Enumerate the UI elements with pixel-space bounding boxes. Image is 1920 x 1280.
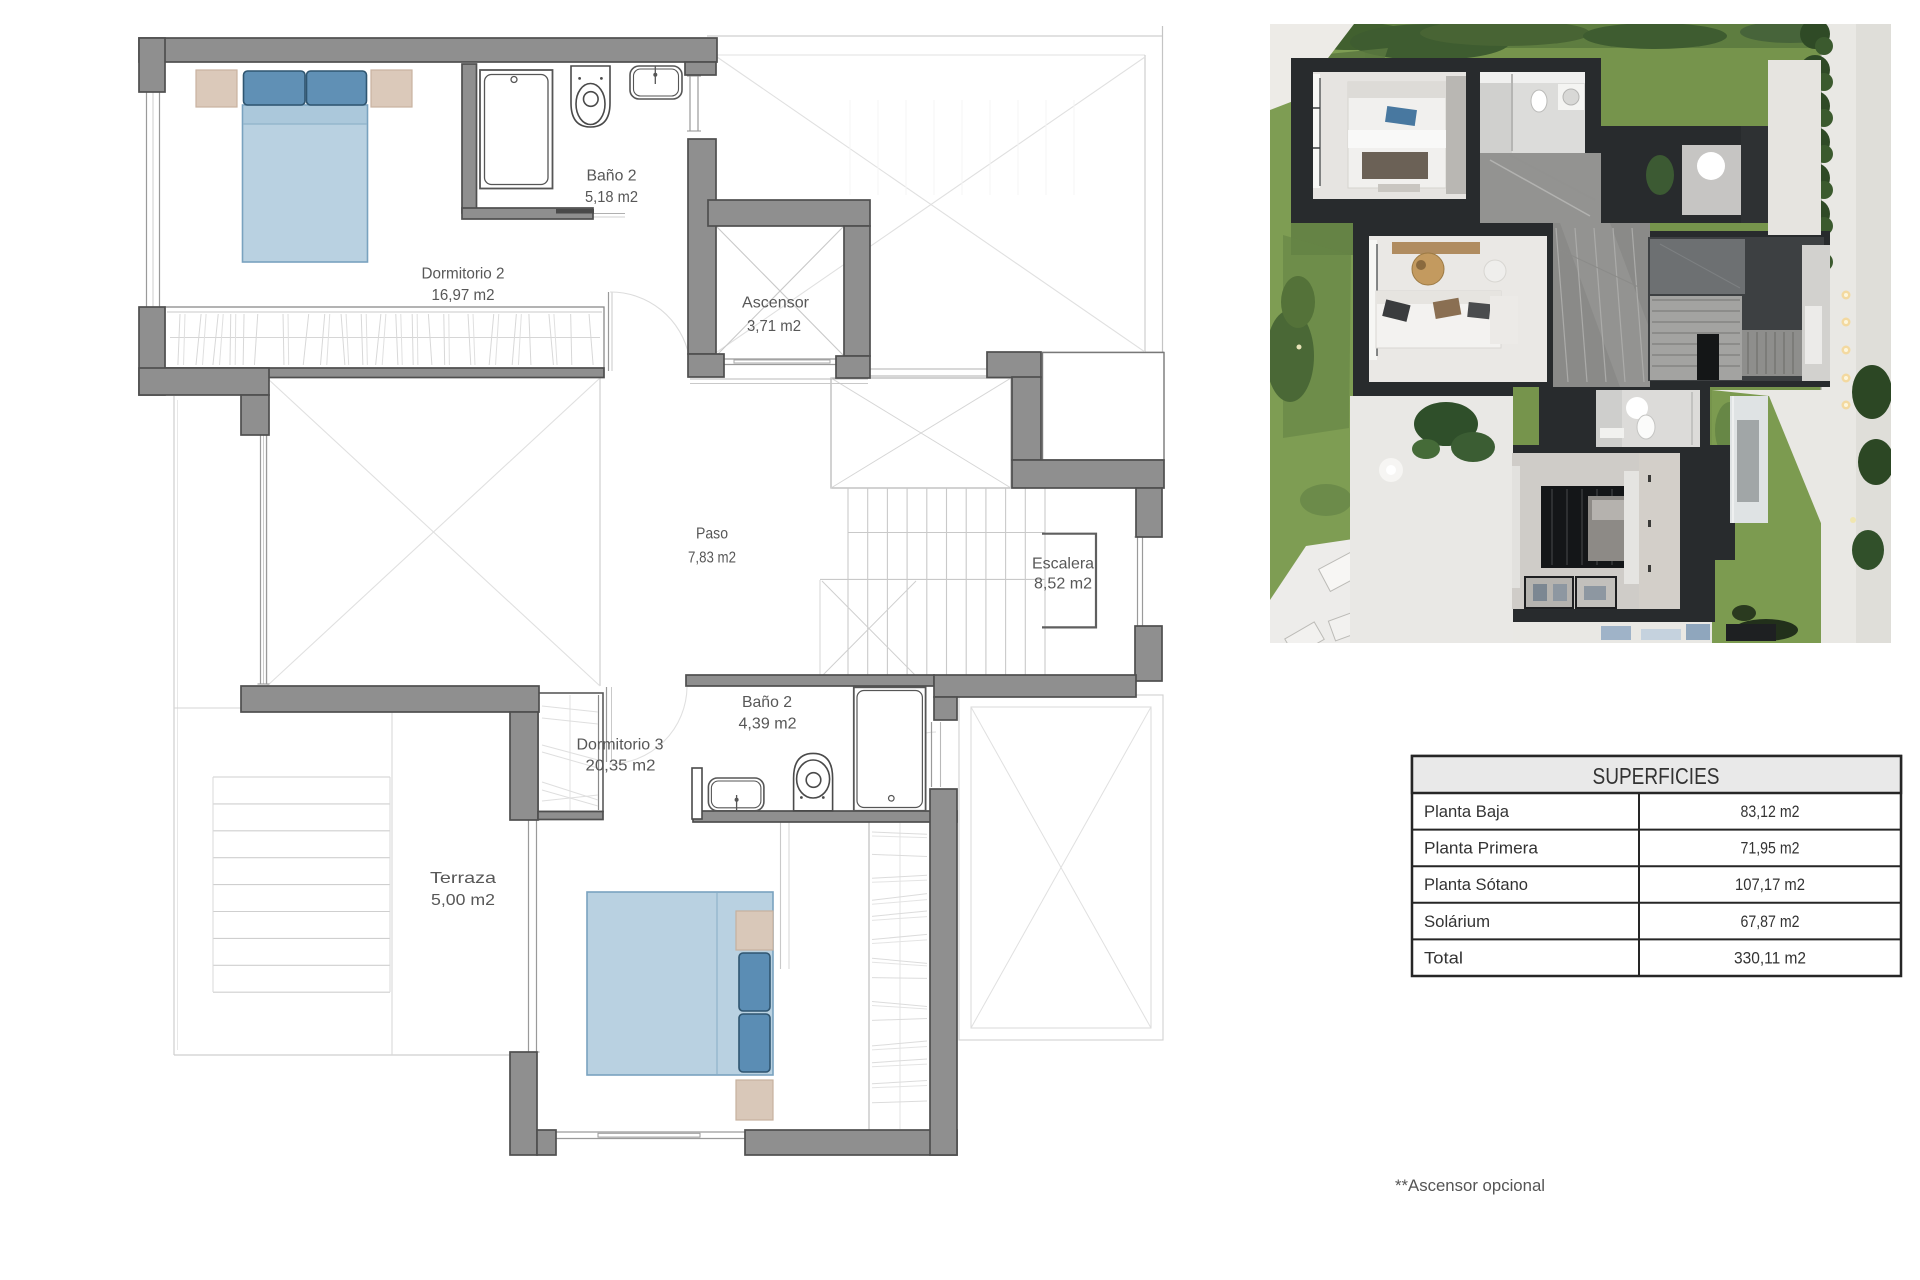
svg-text:Dormitorio 3: Dormitorio 3 xyxy=(577,737,664,754)
svg-text:8,52 m2: 8,52 m2 xyxy=(1034,576,1092,593)
svg-text:**Ascensor opcional: **Ascensor opcional xyxy=(1395,1176,1545,1195)
svg-text:Escalera: Escalera xyxy=(1032,556,1094,573)
svg-text:SUPERFICIES: SUPERFICIES xyxy=(1593,763,1720,789)
svg-text:Baño 2: Baño 2 xyxy=(587,168,637,185)
svg-text:16,97 m2: 16,97 m2 xyxy=(432,287,495,304)
svg-text:3,71 m2: 3,71 m2 xyxy=(747,318,801,335)
svg-text:5,18 m2: 5,18 m2 xyxy=(585,189,638,206)
svg-text:4,39 m2: 4,39 m2 xyxy=(739,716,797,733)
svg-text:5,00 m2: 5,00 m2 xyxy=(431,892,495,909)
svg-text:67,87 m2: 67,87 m2 xyxy=(1741,913,1800,931)
svg-text:Dormitorio 2: Dormitorio 2 xyxy=(422,266,505,283)
svg-text:20,35 m2: 20,35 m2 xyxy=(586,758,656,775)
svg-text:83,12 m2: 83,12 m2 xyxy=(1741,803,1800,821)
svg-text:330,11 m2: 330,11 m2 xyxy=(1734,949,1806,967)
svg-text:7,83 m2: 7,83 m2 xyxy=(688,550,736,567)
svg-text:Planta Primera: Planta Primera xyxy=(1424,840,1539,858)
svg-text:107,17 m2: 107,17 m2 xyxy=(1735,876,1805,894)
svg-text:Terraza: Terraza xyxy=(430,870,496,887)
svg-text:Planta Sótano: Planta Sótano xyxy=(1424,876,1528,894)
svg-text:Ascensor: Ascensor xyxy=(742,295,810,312)
svg-text:Paso: Paso xyxy=(696,526,728,543)
svg-text:71,95 m2: 71,95 m2 xyxy=(1741,840,1800,858)
svg-text:Planta Baja: Planta Baja xyxy=(1424,803,1510,821)
svg-text:Total: Total xyxy=(1424,949,1463,967)
svg-text:Solárium: Solárium xyxy=(1424,913,1490,931)
svg-text:Baño 2: Baño 2 xyxy=(742,694,792,711)
